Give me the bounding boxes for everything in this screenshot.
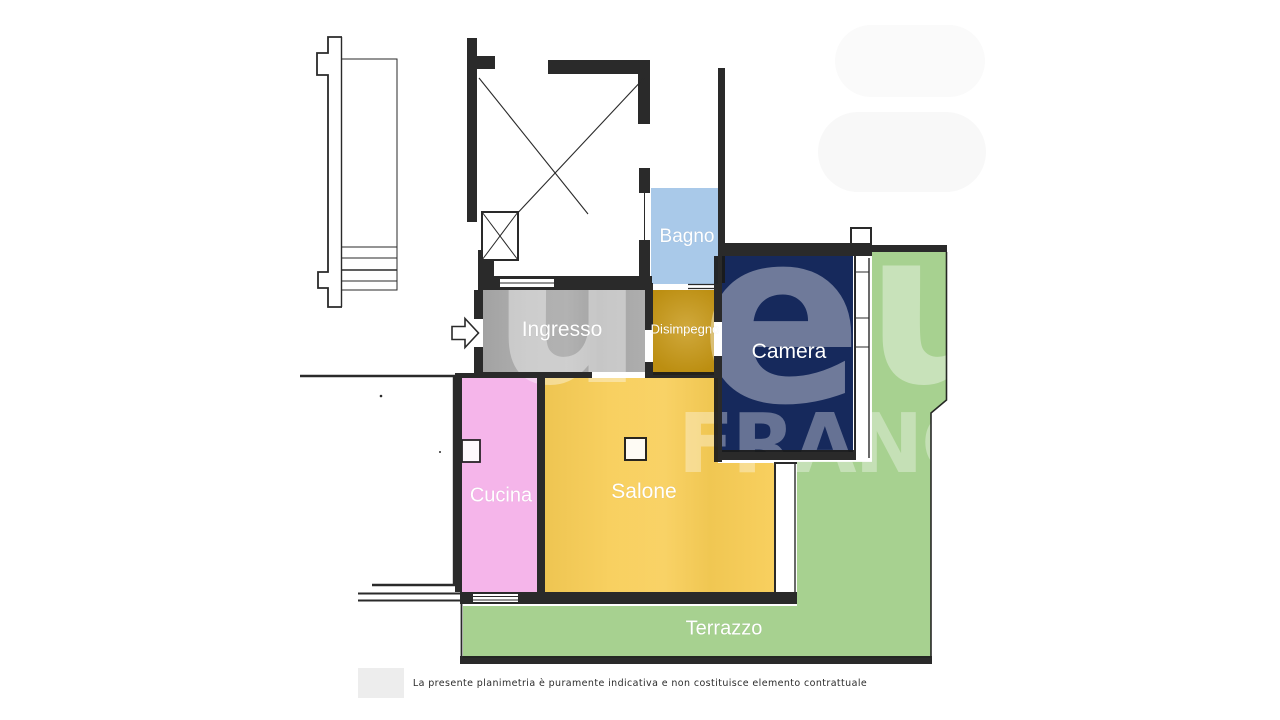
- scan-artifact-blob: [818, 112, 986, 192]
- floorplan-canvas: u e u FRANCH: [0, 0, 1280, 720]
- shaft-cross-line: [479, 78, 588, 214]
- disclaimer-text: La presente planimetria è puramente indi…: [413, 678, 867, 689]
- entrance-arrow-icon: [452, 319, 479, 348]
- scan-artifact-blob: [835, 25, 985, 97]
- room-label-ingresso: Ingresso: [522, 318, 603, 342]
- elevator-box: [482, 212, 518, 260]
- shaft-cross-line: [484, 77, 645, 249]
- room-label-salone: Salone: [611, 480, 676, 504]
- room-label-terrazzo: Terrazzo: [686, 618, 763, 641]
- scan-artifact-blob: [358, 668, 404, 698]
- room-label-bagno: Bagno: [660, 226, 715, 248]
- wall-notch: [851, 228, 871, 244]
- room-label-disimpegno: Disimpegno: [651, 322, 720, 337]
- room-label-cucina: Cucina: [470, 485, 532, 508]
- room-label-camera: Camera: [752, 340, 827, 364]
- stair-outline: [342, 59, 397, 290]
- stairwell-wall: [317, 37, 342, 307]
